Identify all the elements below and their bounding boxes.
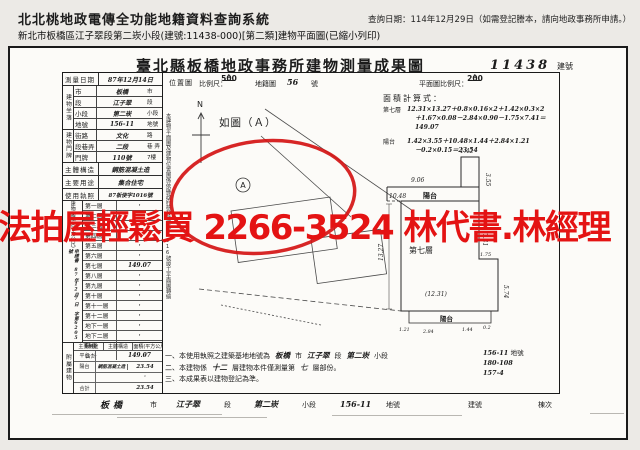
cell-label: 段巷弄 <box>74 141 97 151</box>
note-subsection: 第二崁 <box>347 351 370 360</box>
footer-building-unit-label: 棟次 <box>538 400 552 410</box>
calc-line-balcony: 陽台 1.42×3.55＋10.48×1.44＋2.84×1.21 －0.2×0… <box>383 138 561 155</box>
document-subtitle: 新北市板橋區江子翠段第二崁小段(建號:11438-000)[第二類]建物平面圖(… <box>18 28 380 42</box>
lot-unit-label: 地號 <box>511 349 524 357</box>
cadastre-sheet-number: 56 <box>287 77 298 87</box>
note-section: 江子翠 <box>307 351 330 360</box>
dim-label: 1.75 <box>480 252 491 258</box>
dim-label: 1.21 <box>399 327 410 333</box>
floor-label: 地下二層 <box>83 331 117 340</box>
calc-formula: 12.31×13.27＋0.8×0.16×2＋1.42×0.3×2 ＋1.67×… <box>407 106 561 132</box>
lot-number: 157-4 <box>483 369 524 379</box>
note-text: 層建物本件僅測量第 <box>232 364 295 372</box>
footer-city: 板橋 <box>100 398 126 411</box>
table-row: 主要用途 集合住宅 <box>63 176 162 189</box>
note-text: 市 <box>295 352 302 360</box>
table-row: 地下二層 · <box>83 331 162 341</box>
figure-reference-label: 如圖（Ａ） <box>219 116 277 129</box>
system-title: 北北桃地政電傳全功能地籍資料查詢系統 <box>18 9 270 28</box>
attached-building-table: 主要用途 主體構造 面積(平方公尺) 平台 · <box>74 343 162 393</box>
table-row: 測量日期 87年12月14日 <box>63 73 162 86</box>
area-calculation-title: 面積計算式： <box>383 93 561 104</box>
footer-lot-unit: 地號 <box>386 400 400 410</box>
footer-section-unit: 段 <box>224 400 231 410</box>
cell-value: 文化 <box>97 131 147 140</box>
plan-scale-label: 平面圖比例尺： <box>419 79 468 89</box>
footer-city-unit: 市 <box>150 400 157 410</box>
table-row: 主體構造 鋼筋混凝土造 <box>63 163 162 176</box>
table-row: 第七層 149.07 <box>83 261 162 271</box>
field-value: 集合住宅 <box>99 178 162 187</box>
floor-label: 第十一層 <box>83 301 117 310</box>
table-row: 地號 156-11 地號 <box>74 119 162 129</box>
cell-usage: 陽台 <box>74 362 96 372</box>
formula-line: ＋1.67×0.08－2.84×0.90－1.75×7.41＝149.07 <box>407 115 561 132</box>
table-row: 地下一層 · <box>83 321 162 331</box>
note-measured-floor: 七 <box>300 363 308 372</box>
note-city: 板橋 <box>275 351 290 360</box>
cell-label: 街路 <box>74 130 97 140</box>
attached-rows: 平台 · 陽台 鋼筋混凝土造 23.54 <box>74 351 162 393</box>
balcony-bottom-label: 陽台 <box>440 314 454 323</box>
table-row: 段巷弄 二段 巷 弄 <box>74 141 162 152</box>
calc-formula: 1.42×3.55＋10.48×1.44＋2.84×1.21 －0.2×0.15… <box>407 138 530 155</box>
underline <box>52 414 222 415</box>
north-label: N <box>197 100 203 109</box>
field-label: 使用執照 <box>63 189 99 200</box>
floor-area-value: · <box>117 282 162 289</box>
location-map-label: 位置圖 <box>169 78 193 88</box>
query-date: 查詢日期：114年12月29日（如需登記謄本，請向地政事務所申請。） <box>368 13 631 25</box>
floor-area-value: · <box>117 292 162 299</box>
note-text: 一、本使用執照之建築基地地號為 <box>165 352 270 360</box>
application-note: 申請書 87年12月7日 字第6205號 <box>67 249 79 342</box>
floor-area-value: · <box>117 272 162 279</box>
cell-structure: 鋼筋混凝土造 <box>96 364 128 370</box>
field-value: 87板使字1016號 <box>99 191 162 199</box>
cell-label: 段 <box>74 97 97 107</box>
floor-area-value: · <box>117 332 162 339</box>
note-text: 小段 <box>374 352 388 360</box>
table-row: 第十一層 · <box>83 301 162 311</box>
balcony-top-label: 陽台 <box>423 191 437 200</box>
address-rows: 街路 文化 路 段巷弄 二段 巷 弄 <box>74 130 162 162</box>
table-row: 合計 23.54 <box>74 383 162 393</box>
cell-area: 23.54 <box>128 385 162 391</box>
floor-label: 第六層 <box>83 251 117 260</box>
calc-line-floor7: 第七層 12.31×13.27＋0.8×0.16×2＋1.42×0.3×2 ＋1… <box>383 106 561 132</box>
floor-label: 第十二層 <box>83 311 117 320</box>
dim-label: (12.31) <box>425 291 448 298</box>
footer-building-number-label: 建號 <box>468 400 482 410</box>
dim-label: 3.55 <box>484 173 491 187</box>
floor-area-value: · <box>117 322 162 329</box>
area-calculation: 面積計算式： 第七層 12.31×13.27＋0.8×0.16×2＋1.42×0… <box>383 93 561 156</box>
col-header: 面積(平方公尺) <box>133 343 162 350</box>
calc-label: 第七層 <box>383 106 407 132</box>
cadastre-map-label: 地籍圖 <box>255 79 276 89</box>
cell-value: 110號 <box>97 153 147 162</box>
underline <box>590 413 624 414</box>
table-row: 段 江子翠 段 <box>74 97 162 108</box>
floor-area-value: · <box>117 252 162 259</box>
building-number-label: 建號 <box>557 61 573 72</box>
location-group: 建物坐落 市 板橋 市 段 江子翠 <box>63 86 162 130</box>
cell-value: 板橋 <box>97 87 147 96</box>
cell-unit: 地號 <box>147 120 162 128</box>
group-label: 建物坐落 <box>63 86 74 129</box>
floor-label: 第九層 <box>83 281 117 290</box>
footer-section: 江子翠 <box>176 399 200 410</box>
dim-label: 10.48 <box>389 193 406 200</box>
attached-building-group: 附屬建物 主要用途 主體構造 面積(平方公尺) 平台 <box>63 343 162 393</box>
cell-usage <box>74 373 96 383</box>
table-row: 第九層 · <box>83 281 162 291</box>
formula-line: 1.42×3.55＋10.48×1.44＋2.84×1.21 <box>407 138 530 147</box>
cell-value: 二段 <box>97 142 147 151</box>
dim-label: 1.44 <box>462 327 473 333</box>
dim-label: 2.84 <box>422 329 434 335</box>
table-row: 陽台 鋼筋混凝土造 23.54 <box>74 362 162 373</box>
floor-area-value: · <box>117 312 162 319</box>
field-label: 主體構造 <box>63 163 99 175</box>
dim-label: 0.2 <box>483 325 491 331</box>
table-row: 小段 第二崁 小段 <box>74 108 162 119</box>
cell-unit: 小段 <box>147 109 162 117</box>
cadastre-unit: 號 <box>311 79 318 89</box>
table-row: 門牌 110號 7樓 <box>74 152 162 162</box>
dim-label: 9.06 <box>411 177 425 184</box>
formula-line: －0.2×0.15＝23.54 <box>407 147 530 156</box>
note-floor-count: 十二 <box>212 363 227 372</box>
point-a-label: A <box>240 181 246 190</box>
cell-label: 地號 <box>74 119 97 129</box>
col-header: 主要用途 <box>74 343 104 350</box>
floor-label: 第七層 <box>83 261 117 270</box>
floor-label: 第十層 <box>83 291 117 300</box>
cell-usage: 合計 <box>74 383 96 393</box>
table-row: 街路 文化 路 <box>74 130 162 141</box>
cell-value: 第二崁 <box>97 109 147 118</box>
dim-label: 5.74 <box>502 285 509 299</box>
cell-unit: 巷 弄 <box>147 142 162 150</box>
note-text: 二、本建物係 <box>165 364 207 372</box>
field-label: 主要用途 <box>63 176 99 188</box>
cell-unit: 7樓 <box>147 153 162 161</box>
table-row: 市 板橋 市 <box>74 86 162 97</box>
footer-subsection-unit: 小段 <box>302 400 316 410</box>
lot-numbers: 156-11 地號 180-108 157-4 <box>483 349 524 378</box>
table-row: 第六層 · <box>83 251 162 261</box>
underline <box>117 417 267 418</box>
lot-number: 156-11 <box>483 349 508 357</box>
location-rows: 市 板橋 市 段 江子翠 段 小段 <box>74 86 162 129</box>
cell-unit: 市 <box>147 87 162 95</box>
lot-number: 180-108 <box>483 359 524 369</box>
red-watermark-text: 法拍屋輕鬆買 2266-3524 林代書.林經理 <box>0 200 640 249</box>
field-value: 鋼筋混凝土造 <box>99 165 162 174</box>
cell-unit: 段 <box>147 98 162 106</box>
floor-area-value: 149.07 <box>117 262 162 269</box>
cell-value: 江子翠 <box>97 98 147 107</box>
note-text: 層部份。 <box>313 364 341 372</box>
cell-value: 156-11 <box>97 121 147 128</box>
col-header: 主體構造 <box>104 343 134 350</box>
floor-label: 第八層 <box>83 271 117 280</box>
footer-subsection: 第二崁 <box>254 399 278 410</box>
attached-header-row: 主要用途 主體構造 面積(平方公尺) <box>74 343 162 351</box>
cell-area: · <box>128 374 162 380</box>
query-system-page: 北北桃地政電傳全功能地籍資料查詢系統 查詢日期：114年12月29日（如需登記謄… <box>0 0 640 450</box>
table-row: · <box>74 373 162 384</box>
cell-area: · <box>128 353 162 359</box>
field-value: 87年12月14日 <box>99 75 162 84</box>
note-text: 三、本成果表以建物登記為準。 <box>165 375 263 383</box>
plan-scale-denominator: 200 <box>467 75 483 83</box>
underline <box>332 415 462 416</box>
cell-label: 小段 <box>74 108 97 118</box>
building-number: 11438 <box>490 58 550 73</box>
address-group: 建物門牌 街路 文化 路 段巷弄 二段 <box>63 130 162 163</box>
floor-area-value: · <box>117 302 162 309</box>
table-row: 第十層 · <box>83 291 162 301</box>
cell-area: 23.54 <box>128 364 162 370</box>
table-row: 第八層 · <box>83 271 162 281</box>
group-label: 附屬建物 <box>63 343 74 393</box>
calc-label: 陽台 <box>383 138 407 155</box>
field-label: 測量日期 <box>63 73 99 85</box>
scale-denominator: 500 <box>221 75 237 83</box>
note-text: 段 <box>335 352 342 360</box>
group-label: 建物門牌 <box>63 130 74 162</box>
formula-line: 12.31×13.27＋0.8×0.16×2＋1.42×0.3×2 <box>407 106 561 115</box>
cell-label: 門牌 <box>74 152 97 162</box>
footer-lot-number: 156-11 <box>340 399 371 409</box>
cell-usage: 平台 <box>74 351 96 361</box>
cell-label: 市 <box>74 86 97 96</box>
floor-label: 地下一層 <box>83 321 117 330</box>
table-row: 第十二層 · <box>83 311 162 321</box>
cell-unit: 路 <box>147 131 162 139</box>
table-row: 平台 · <box>74 351 162 362</box>
